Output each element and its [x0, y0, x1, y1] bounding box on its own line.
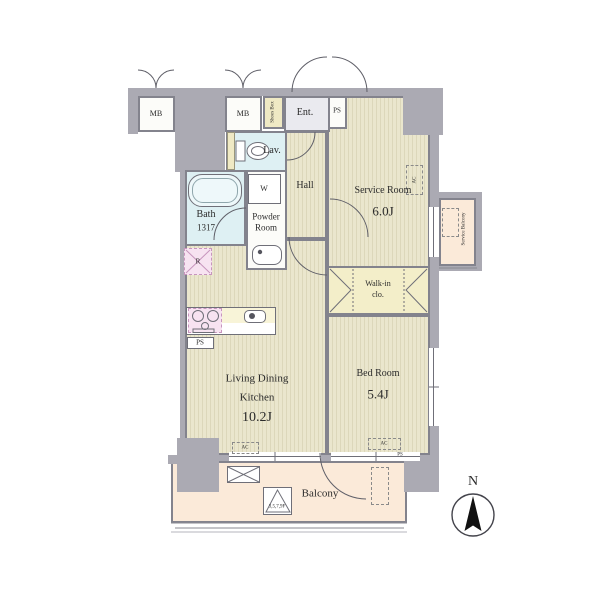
service-room-size: 6.0J: [372, 205, 393, 218]
window-service-room: [429, 207, 439, 257]
evacuation-hatch: [263, 487, 292, 515]
service-room-label: Service Room: [355, 186, 412, 196]
ac-ldk-label: AC: [242, 446, 249, 451]
equipment-box-balcony: [371, 467, 389, 505]
hall-label: Hall: [296, 181, 313, 191]
ac-outdoor-unit-balcony: [227, 466, 260, 483]
powder-room-label-2: Room: [255, 224, 277, 233]
window-bedroom-sliding: [331, 452, 420, 461]
wall-block-balcony-right: [404, 461, 439, 492]
meter-box-2-label: MB: [237, 110, 249, 118]
bed-room-size: 5.4J: [367, 388, 388, 401]
wall-top: [128, 88, 443, 96]
pipe-shaft-bedroom-label: PS: [397, 453, 403, 458]
ac-service-label: AC: [413, 177, 418, 184]
ldk-size: 10.2J: [242, 411, 272, 425]
service-balcony-label: Service Balcony: [462, 213, 467, 246]
pipe-shaft-kitchen-label: PS: [196, 340, 204, 347]
refrigerator-label: R: [196, 259, 201, 266]
entrance-label: Ent.: [297, 108, 313, 118]
meter-box-1-label: MB: [150, 110, 162, 118]
stove-box: [188, 308, 222, 333]
bath-size: 1317: [197, 224, 215, 233]
ldk-label-1: Living Dining: [226, 374, 289, 385]
bath-label: Bath: [197, 210, 216, 220]
ldk-label-2: Kitchen: [240, 393, 275, 404]
evacuation-hatch-label: 3,5,7,9F: [269, 505, 286, 510]
walk-in-closet-label-1: Walk-in: [365, 280, 391, 288]
entrance-door-arcs: [292, 57, 367, 92]
lavatory-label: Lav.: [263, 146, 280, 156]
meter-box-door-arcs: [138, 70, 261, 88]
wall-nub-left: [168, 455, 178, 464]
powder-room-label-1: Powder: [252, 213, 280, 222]
powder-washbasin: [252, 245, 282, 265]
bathtub-inner: [192, 178, 238, 203]
wall-notch-top-right: [403, 96, 443, 135]
pipe-shaft-top-label: PS: [333, 108, 341, 115]
wall-top-left: [128, 88, 138, 134]
washing-machine-label: W: [260, 185, 268, 193]
kitchen-sink: [244, 310, 266, 323]
walk-in-closet-label-2: clo.: [372, 291, 384, 299]
equipment-box-service-balcony: [442, 208, 459, 237]
bed-room-label: Bed Room: [356, 369, 399, 379]
compass-north-label: N: [468, 475, 478, 489]
floor-plan: MB MB Shoes Box Ent. PS Lav. Hall Servic…: [0, 0, 600, 602]
window-bedroom: [429, 348, 439, 426]
room-bedroom: [327, 315, 430, 455]
shoes-box-label: Shoes Box: [271, 101, 276, 123]
lavatory-shelf: [227, 132, 235, 170]
balcony-label: Balcony: [302, 489, 339, 500]
wall-block-bottom-left: [177, 438, 219, 492]
compass-icon: [452, 494, 494, 536]
ac-bedroom-label: AC: [381, 442, 388, 447]
